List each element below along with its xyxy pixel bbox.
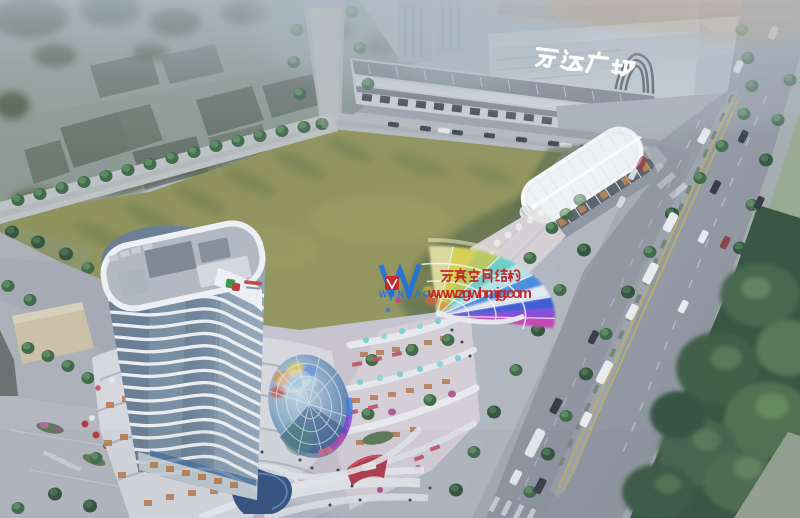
svg-text:www.zgwhmjg.com: www.zgwhmjg.com <box>427 285 532 302</box>
svg-text:WANHAO: WANHAO <box>379 289 432 299</box>
